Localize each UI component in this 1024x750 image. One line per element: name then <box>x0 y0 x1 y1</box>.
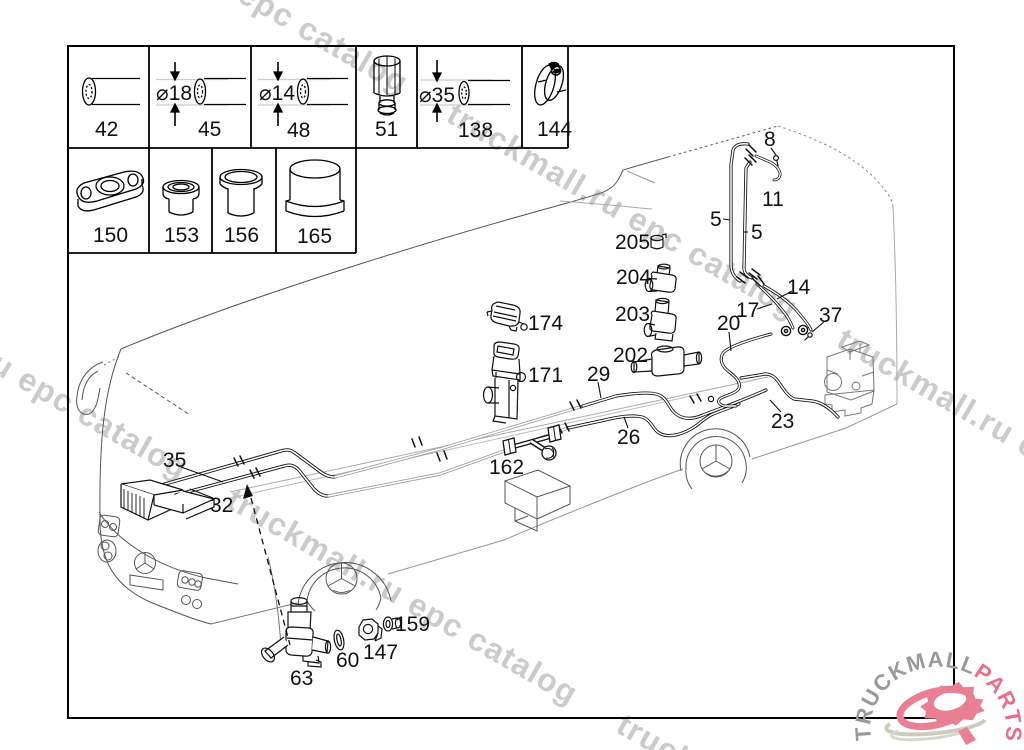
svg-text:63: 63 <box>290 667 313 690</box>
svg-text:202: 202 <box>613 344 648 367</box>
svg-text:144: 144 <box>537 118 572 141</box>
svg-text:153: 153 <box>164 224 199 247</box>
svg-text:⌀18: ⌀18 <box>156 82 192 105</box>
svg-text:162: 162 <box>489 456 524 479</box>
svg-text:165: 165 <box>297 225 332 248</box>
svg-text:51: 51 <box>375 118 398 141</box>
svg-text:48: 48 <box>287 119 310 142</box>
svg-text:156: 156 <box>224 224 259 247</box>
svg-text:147: 147 <box>363 641 398 664</box>
svg-text:23: 23 <box>771 410 794 433</box>
svg-text:⌀35: ⌀35 <box>419 84 455 107</box>
svg-text:203: 203 <box>615 303 650 326</box>
svg-text:60: 60 <box>336 649 359 672</box>
svg-text:5: 5 <box>751 221 763 244</box>
svg-text:138: 138 <box>458 119 493 142</box>
svg-text:174: 174 <box>528 312 563 335</box>
svg-text:171: 171 <box>528 364 563 387</box>
svg-text:205: 205 <box>615 231 650 254</box>
svg-text:20: 20 <box>717 312 740 335</box>
svg-text:42: 42 <box>95 118 118 141</box>
svg-text:14: 14 <box>787 276 811 299</box>
svg-text:5: 5 <box>710 208 722 231</box>
svg-text:159: 159 <box>395 613 430 636</box>
svg-text:29: 29 <box>587 363 610 386</box>
svg-text:204: 204 <box>616 266 651 289</box>
svg-text:35: 35 <box>163 449 186 472</box>
svg-text:45: 45 <box>198 118 221 141</box>
svg-text:37: 37 <box>819 304 842 327</box>
svg-text:⌀14: ⌀14 <box>259 82 295 105</box>
svg-text:26: 26 <box>617 426 640 449</box>
svg-text:11: 11 <box>762 188 784 211</box>
svg-text:32: 32 <box>210 494 233 517</box>
svg-text:150: 150 <box>93 224 128 247</box>
svg-text:8: 8 <box>764 128 776 151</box>
